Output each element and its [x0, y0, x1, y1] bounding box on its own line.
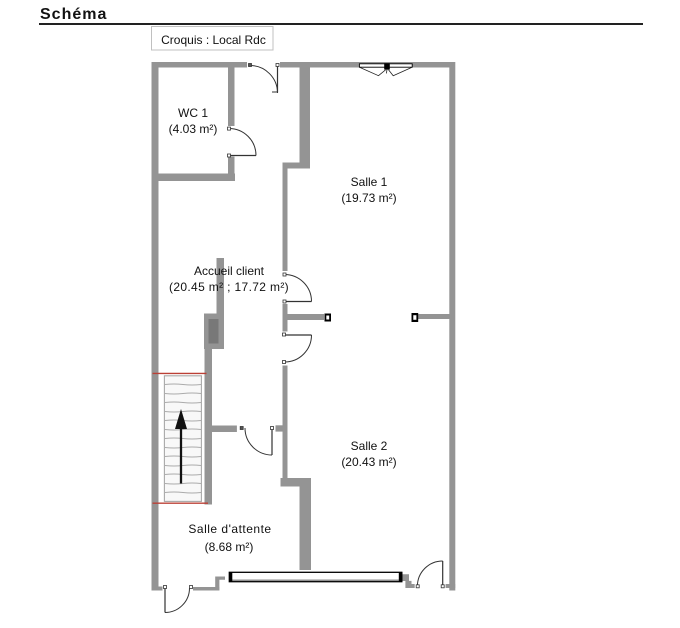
svg-text:(4.03 m²): (4.03 m²): [169, 122, 218, 136]
svg-text:(8.68 m²): (8.68 m²): [205, 540, 254, 554]
svg-text:(20.45 m² ; 17.72 m²): (20.45 m² ; 17.72 m²): [169, 280, 289, 294]
svg-text:Salle 1: Salle 1: [351, 175, 388, 189]
svg-text:WC 1: WC 1: [178, 106, 208, 120]
svg-text:(19.73 m²): (19.73 m²): [341, 191, 396, 205]
svg-text:(20.43 m²): (20.43 m²): [341, 455, 396, 469]
svg-text:Accueil client: Accueil client: [194, 264, 265, 278]
svg-text:Salle 2: Salle 2: [351, 439, 388, 453]
svg-text:Salle d'attente: Salle d'attente: [188, 522, 271, 536]
svg-text:Croquis : Local Rdc: Croquis : Local Rdc: [161, 33, 266, 47]
